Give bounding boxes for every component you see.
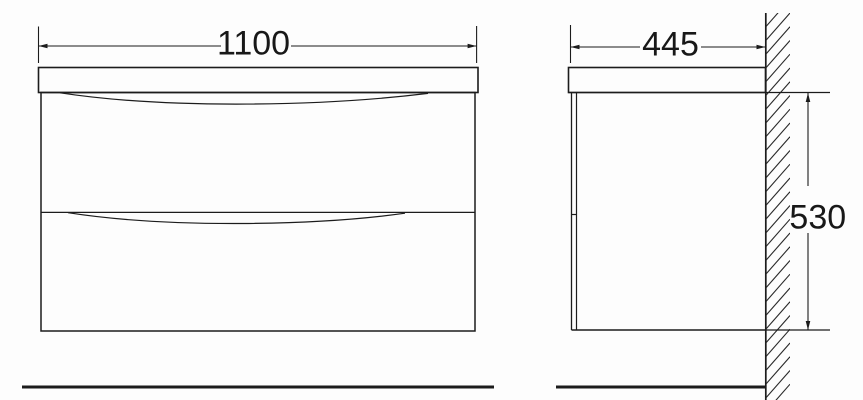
svg-text:445: 445 [642, 26, 699, 64]
svg-text:530: 530 [789, 199, 846, 237]
svg-text:1100: 1100 [217, 25, 290, 63]
